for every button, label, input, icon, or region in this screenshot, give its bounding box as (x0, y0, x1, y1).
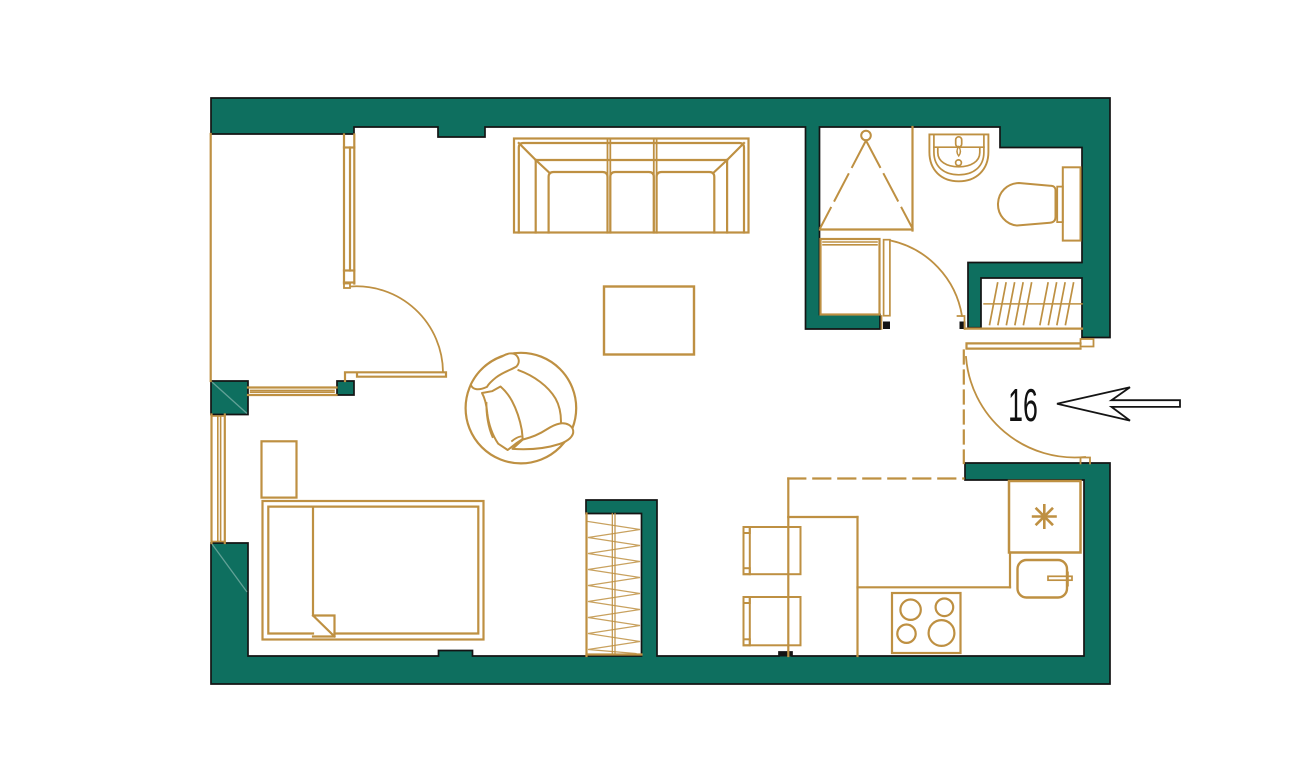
svg-text:16: 16 (1008, 379, 1038, 430)
